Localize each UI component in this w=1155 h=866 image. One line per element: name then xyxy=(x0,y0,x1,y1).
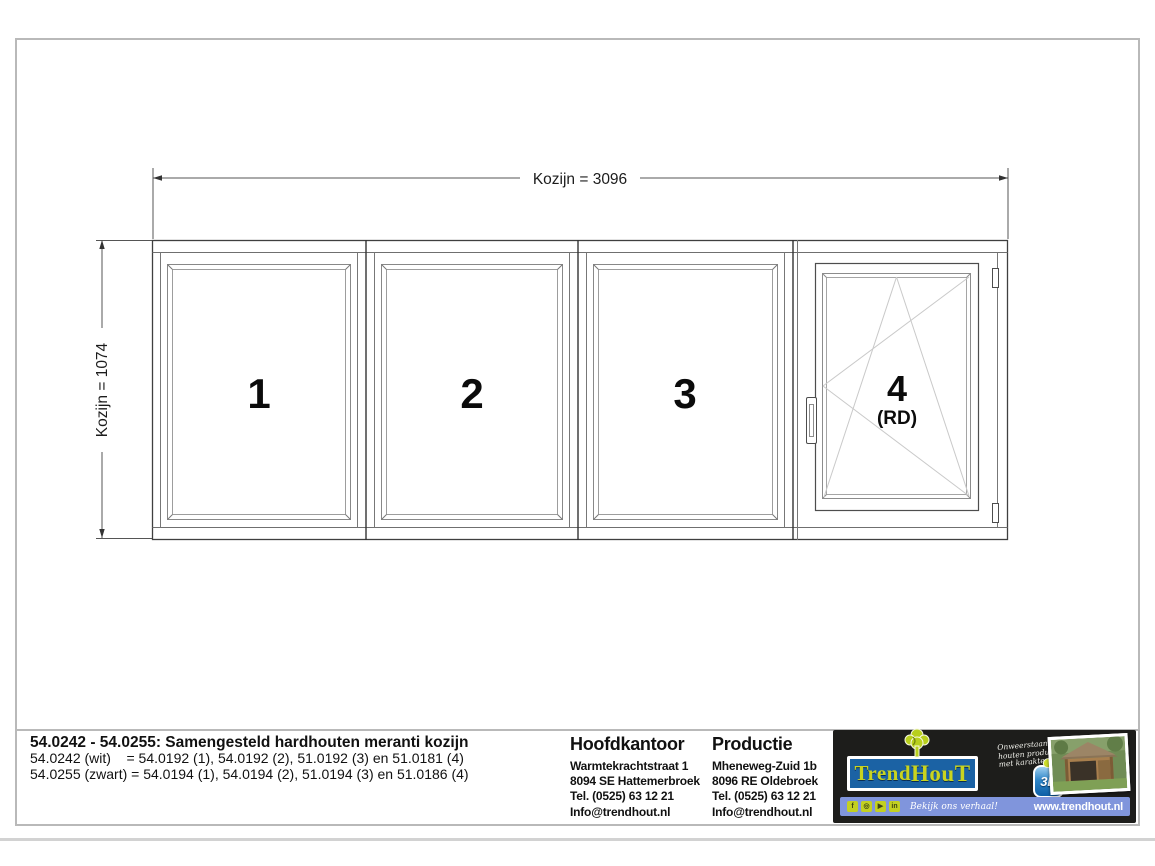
tree-icon xyxy=(899,727,935,759)
dimension-arrows xyxy=(99,175,1008,538)
window-frame-drawing: Kozijn = 3096 Kozijn = 1074 xyxy=(0,0,1155,700)
panel-4-rd-label: (RD) xyxy=(877,408,917,429)
hoofdkantoor-phone: Tel. (0525) 63 12 21 xyxy=(570,789,710,804)
variant-line-wit: 54.0242 (wit) = 54.0192 (1), 54.0192 (2)… xyxy=(30,751,469,766)
panel-3-number: 3 xyxy=(673,370,696,417)
product-info: 54.0242 - 54.0255: Samengesteld hardhout… xyxy=(30,735,469,781)
website-link: www.trendhout.nl xyxy=(1034,801,1123,813)
instagram-icon: ◎ xyxy=(861,801,872,812)
logo-text-trend: Trend xyxy=(854,761,911,786)
trendhout-branding-box: TrendHouT Onweerstaanbare houten product… xyxy=(833,730,1136,823)
panel-4-number: 4 xyxy=(887,368,907,409)
panel-1: 1 xyxy=(161,253,358,528)
variant-line-zwart: 54.0255 (zwart) = 54.0194 (1), 54.0194 (… xyxy=(30,767,469,782)
productie-email: Info@trendhout.nl xyxy=(712,805,842,820)
hoofdkantoor-city: 8094 SE Hattemerbroek xyxy=(570,774,710,789)
productie-address: Productie Mheneweg-Zuid 1b 8096 RE Oldeb… xyxy=(712,735,842,820)
trendhout-logo: TrendHouT xyxy=(847,756,978,791)
frame-couplings xyxy=(366,240,793,540)
linkedin-icon: in xyxy=(889,801,900,812)
dim-height-label: Kozijn = 1074 xyxy=(94,342,111,437)
hoofdkantoor-email: Info@trendhout.nl xyxy=(570,805,710,820)
window-handle xyxy=(807,398,817,444)
productie-heading: Productie xyxy=(712,735,842,754)
product-title: 54.0242 - 54.0255: Samengesteld hardhout… xyxy=(30,735,469,750)
panel-2-number: 2 xyxy=(460,370,483,417)
productie-street: Mheneweg-Zuid 1b xyxy=(712,759,842,774)
social-bar: f ◎ ▶ in Bekijk ons verhaal! www.trendho… xyxy=(840,797,1130,816)
cta-text: Bekijk ons verhaal! xyxy=(910,802,998,812)
logo-text-hout: HouT xyxy=(911,761,971,787)
gazebo-photo xyxy=(1048,733,1131,795)
youtube-icon: ▶ xyxy=(875,801,886,812)
panel-2: 2 xyxy=(375,253,570,528)
hoofdkantoor-address: Hoofdkantoor Warmtekrachtstraat 1 8094 S… xyxy=(570,735,710,820)
dim-width-label: Kozijn = 3096 xyxy=(533,171,627,188)
panel-1-number: 1 xyxy=(247,370,270,417)
bottom-rule xyxy=(0,838,1155,841)
facebook-icon: f xyxy=(847,801,858,812)
panel-3: 3 xyxy=(587,253,785,528)
drawing-sheet: Kozijn = 3096 Kozijn = 1074 xyxy=(0,0,1155,866)
hoofdkantoor-heading: Hoofdkantoor xyxy=(570,735,710,754)
productie-city: 8096 RE Oldebroek xyxy=(712,774,842,789)
productie-phone: Tel. (0525) 63 12 21 xyxy=(712,789,842,804)
hoofdkantoor-street: Warmtekrachtstraat 1 xyxy=(570,759,710,774)
frame-rails xyxy=(153,253,1008,528)
panel-4: 4 (RD) xyxy=(798,240,999,540)
